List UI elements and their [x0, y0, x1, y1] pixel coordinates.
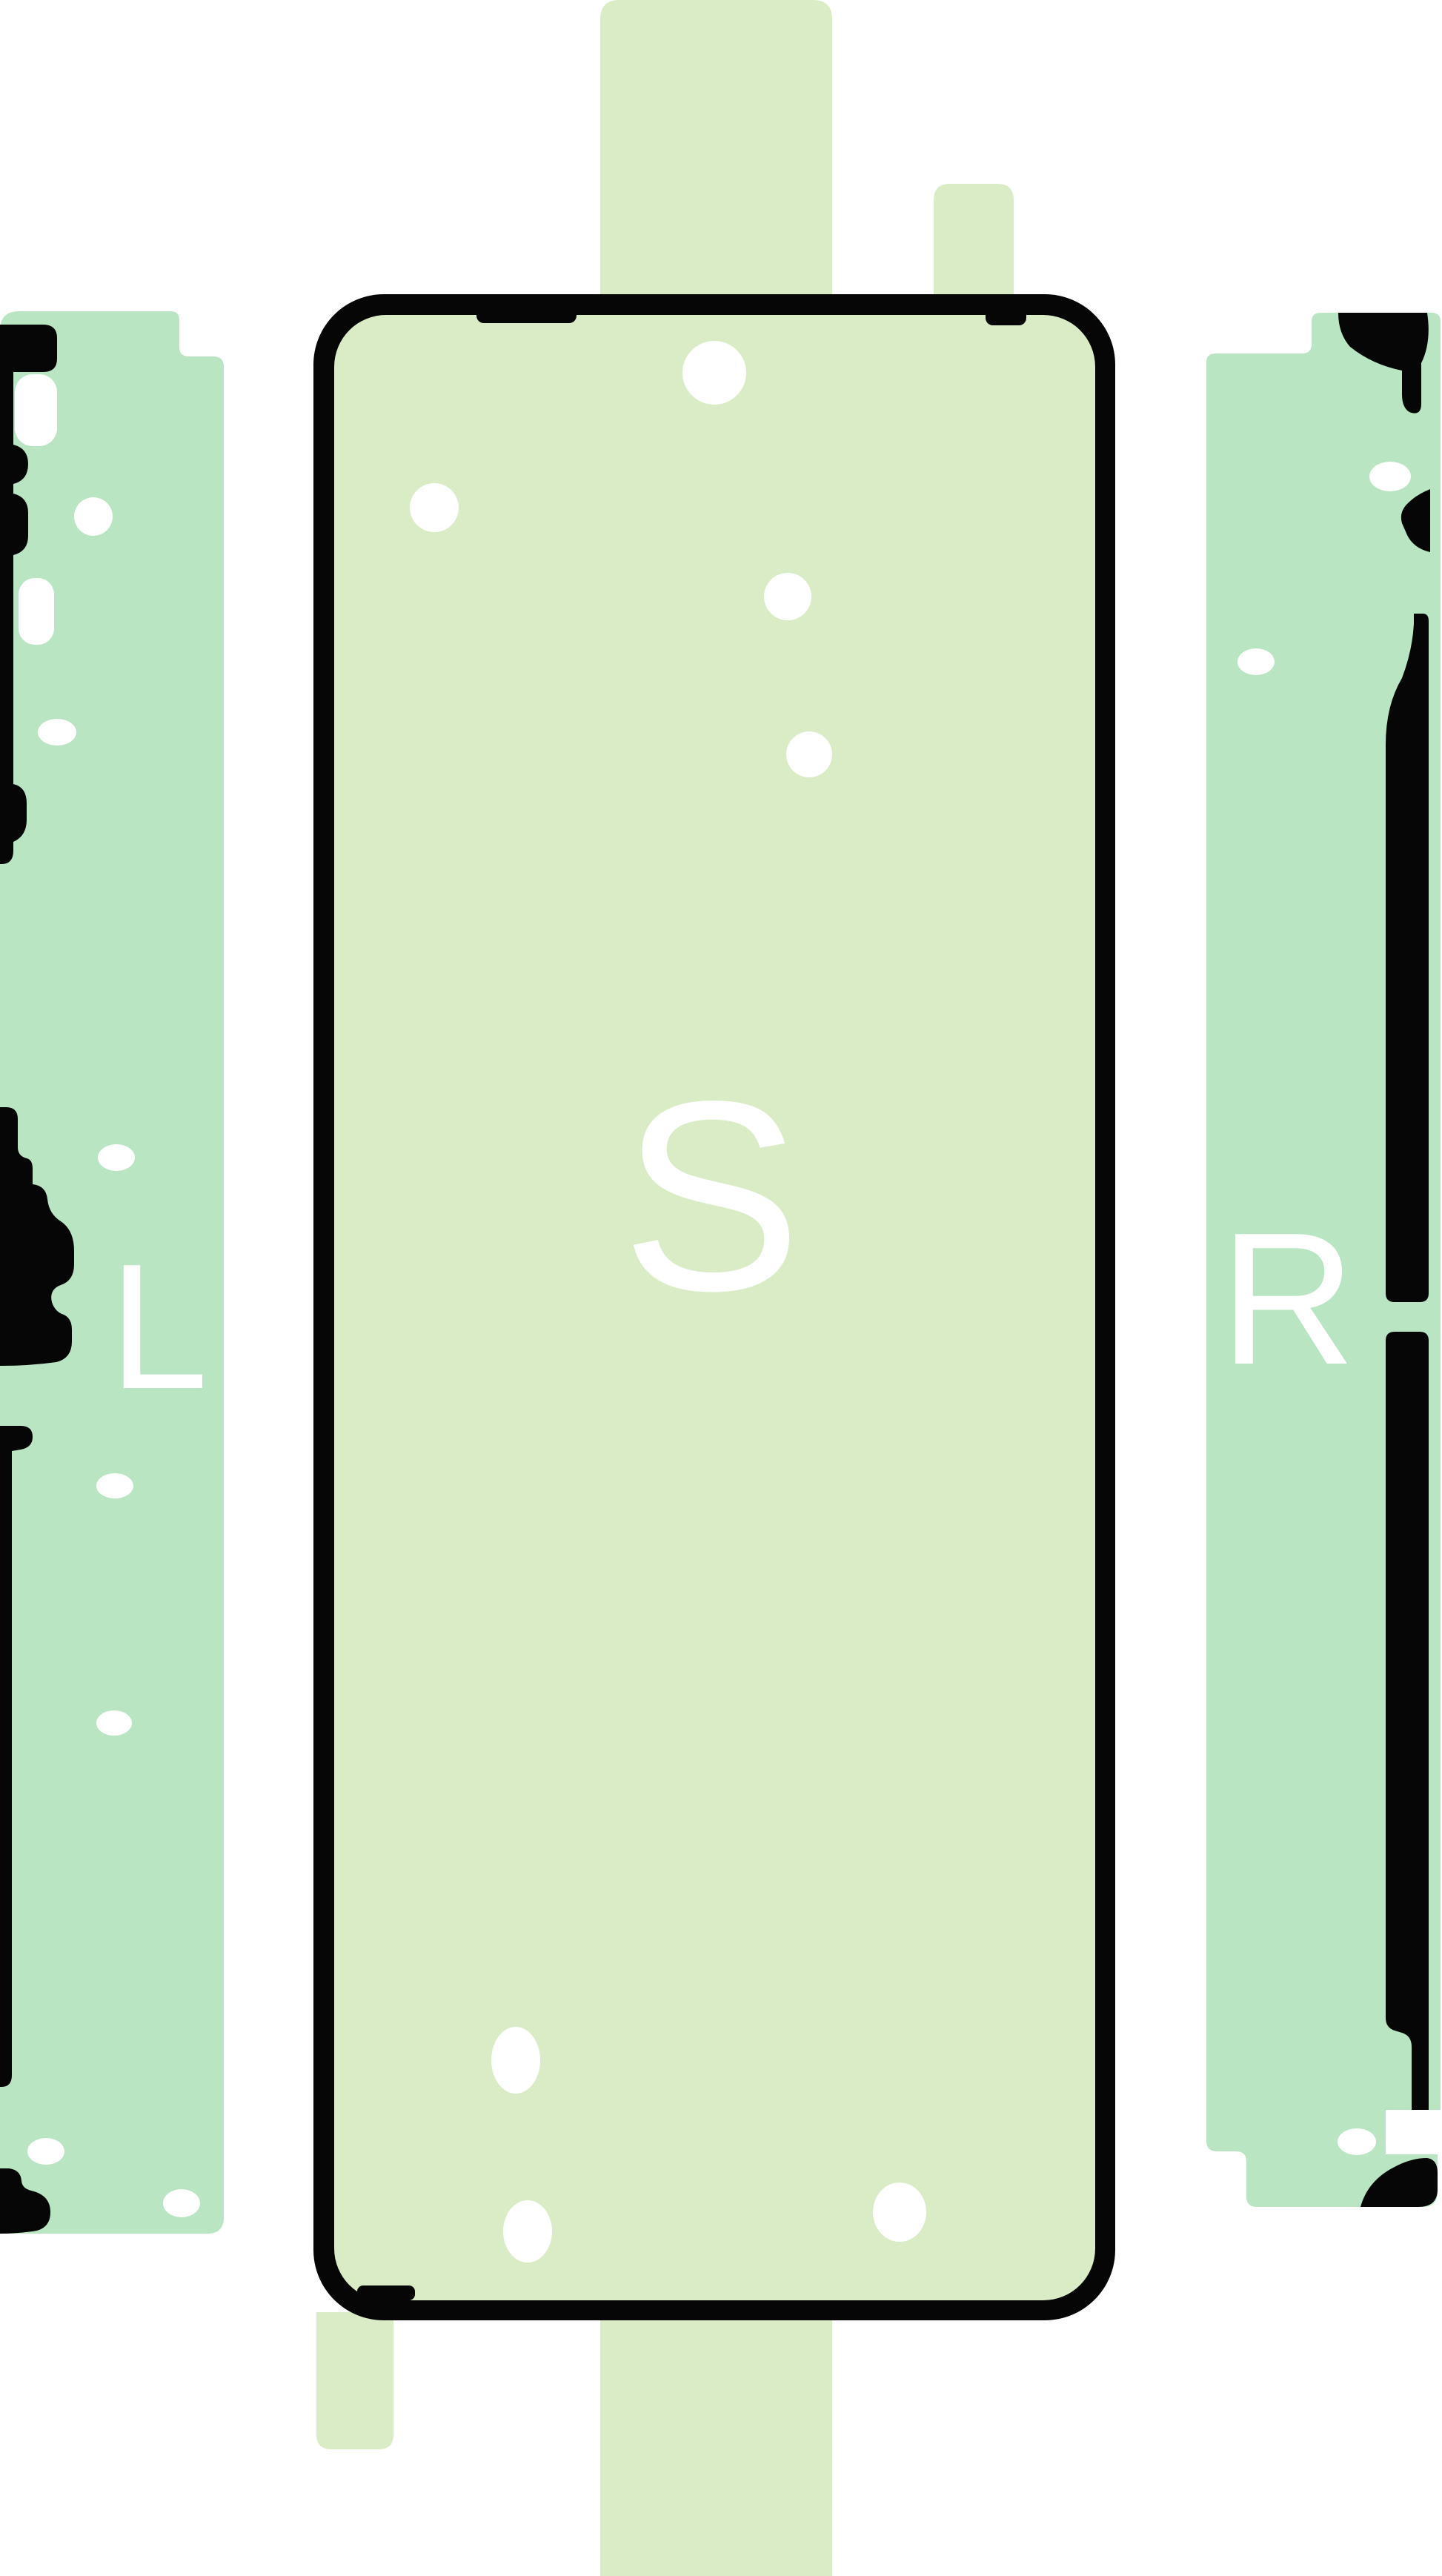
backing-tab-bottom [316, 2312, 393, 2449]
cutout-hole [96, 1710, 132, 1736]
outline-notch-top-right [986, 304, 1026, 325]
right-adhesive-side-bar-upper [1386, 614, 1429, 1302]
left-strip-label: L [109, 1227, 208, 1427]
cutout-hole [873, 2182, 926, 2242]
cutout-hole [786, 731, 832, 777]
left-adhesive-strip: L [0, 311, 224, 2234]
cutout-hole [491, 2027, 540, 2094]
cutout-hole [98, 1144, 135, 1171]
cutout-hole [682, 341, 746, 405]
backing-tab-top [934, 184, 1014, 296]
cutout-hole [27, 2138, 64, 2165]
cutout-hole [1369, 462, 1411, 491]
cutout-hole [503, 2200, 552, 2263]
cutout-hole [764, 573, 811, 620]
center-adhesive-sheet: S [313, 294, 1115, 2320]
cutout-hole [1338, 2128, 1376, 2155]
right-adhesive-side-bar-lower [1386, 1332, 1429, 2110]
cutout-hole [1237, 648, 1275, 675]
cutout-hole [38, 719, 76, 746]
cutout-hole [96, 1473, 133, 1498]
cutout-hole [163, 2189, 200, 2217]
outline-notch-bottom [357, 2285, 415, 2300]
adhesive-sticker-sheet-illustration: S L [0, 0, 1442, 2576]
cutout-hole [74, 497, 113, 536]
cutout-hole [15, 374, 57, 446]
cutout-hole [410, 483, 459, 532]
center-sheet-label: S [621, 1046, 801, 1347]
right-strip-label: R [1220, 1193, 1355, 1404]
outline-notch-top-left [476, 304, 577, 323]
cutout-hole [19, 578, 54, 645]
right-adhesive-strip: R [1206, 313, 1441, 2207]
